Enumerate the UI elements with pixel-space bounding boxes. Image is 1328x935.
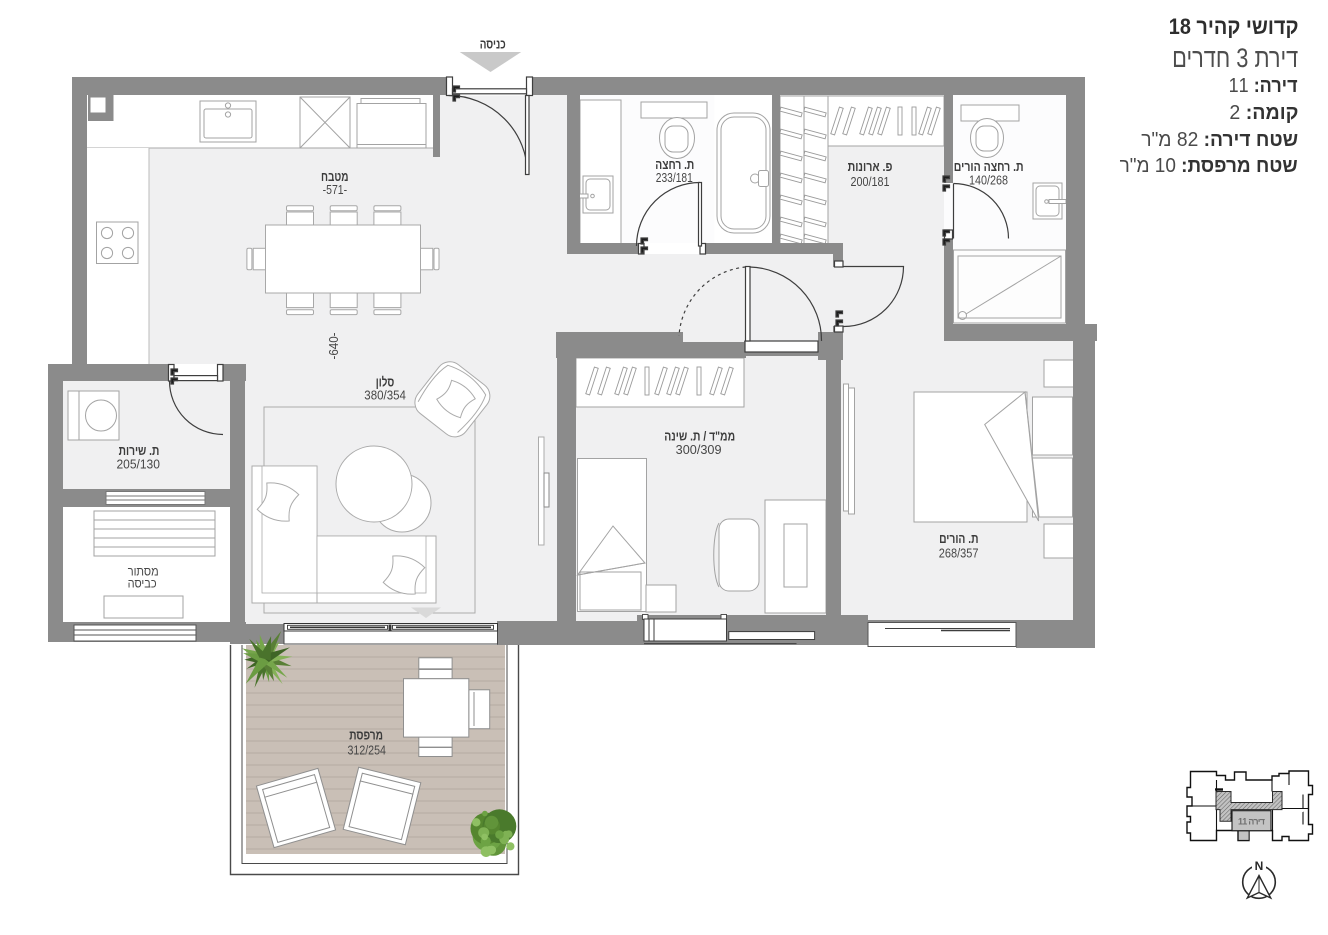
svg-text:200/181: 200/181 bbox=[851, 175, 890, 189]
svg-text:268/357: 268/357 bbox=[939, 546, 979, 560]
svg-text:380/354: 380/354 bbox=[364, 388, 406, 402]
svg-text:233/181: 233/181 bbox=[656, 171, 693, 185]
svg-text:סלון: סלון bbox=[376, 375, 395, 390]
svg-text:ת. הורים: ת. הורים bbox=[939, 531, 978, 546]
svg-text:-571-: -571- bbox=[323, 183, 348, 197]
svg-text:312/254: 312/254 bbox=[348, 743, 386, 757]
svg-text:מטבח: מטבח bbox=[321, 169, 349, 184]
svg-text:ת. רחצה: ת. רחצה bbox=[655, 157, 694, 172]
svg-text:140/268: 140/268 bbox=[969, 173, 1008, 187]
svg-text:ת. שירות: ת. שירות bbox=[119, 443, 160, 458]
svg-text:ממ"ד / ת. שינה: ממ"ד / ת. שינה bbox=[664, 429, 735, 444]
svg-text:-640-: -640- bbox=[327, 333, 341, 360]
svg-text:כניסה: כניסה bbox=[480, 37, 506, 52]
svg-text:N: N bbox=[1255, 859, 1264, 873]
svg-text:דירה 11: דירה 11 bbox=[1238, 817, 1265, 827]
svg-text:כביסה: כביסה bbox=[128, 576, 157, 590]
svg-text:מרפסת: מרפסת bbox=[349, 728, 383, 743]
svg-text:205/130: 205/130 bbox=[116, 458, 160, 472]
svg-text:ת. רחצה הורים: ת. רחצה הורים bbox=[954, 159, 1024, 174]
svg-text:300/309: 300/309 bbox=[676, 443, 722, 457]
svg-text:פ. ארונות: פ. ארונות bbox=[848, 159, 893, 174]
